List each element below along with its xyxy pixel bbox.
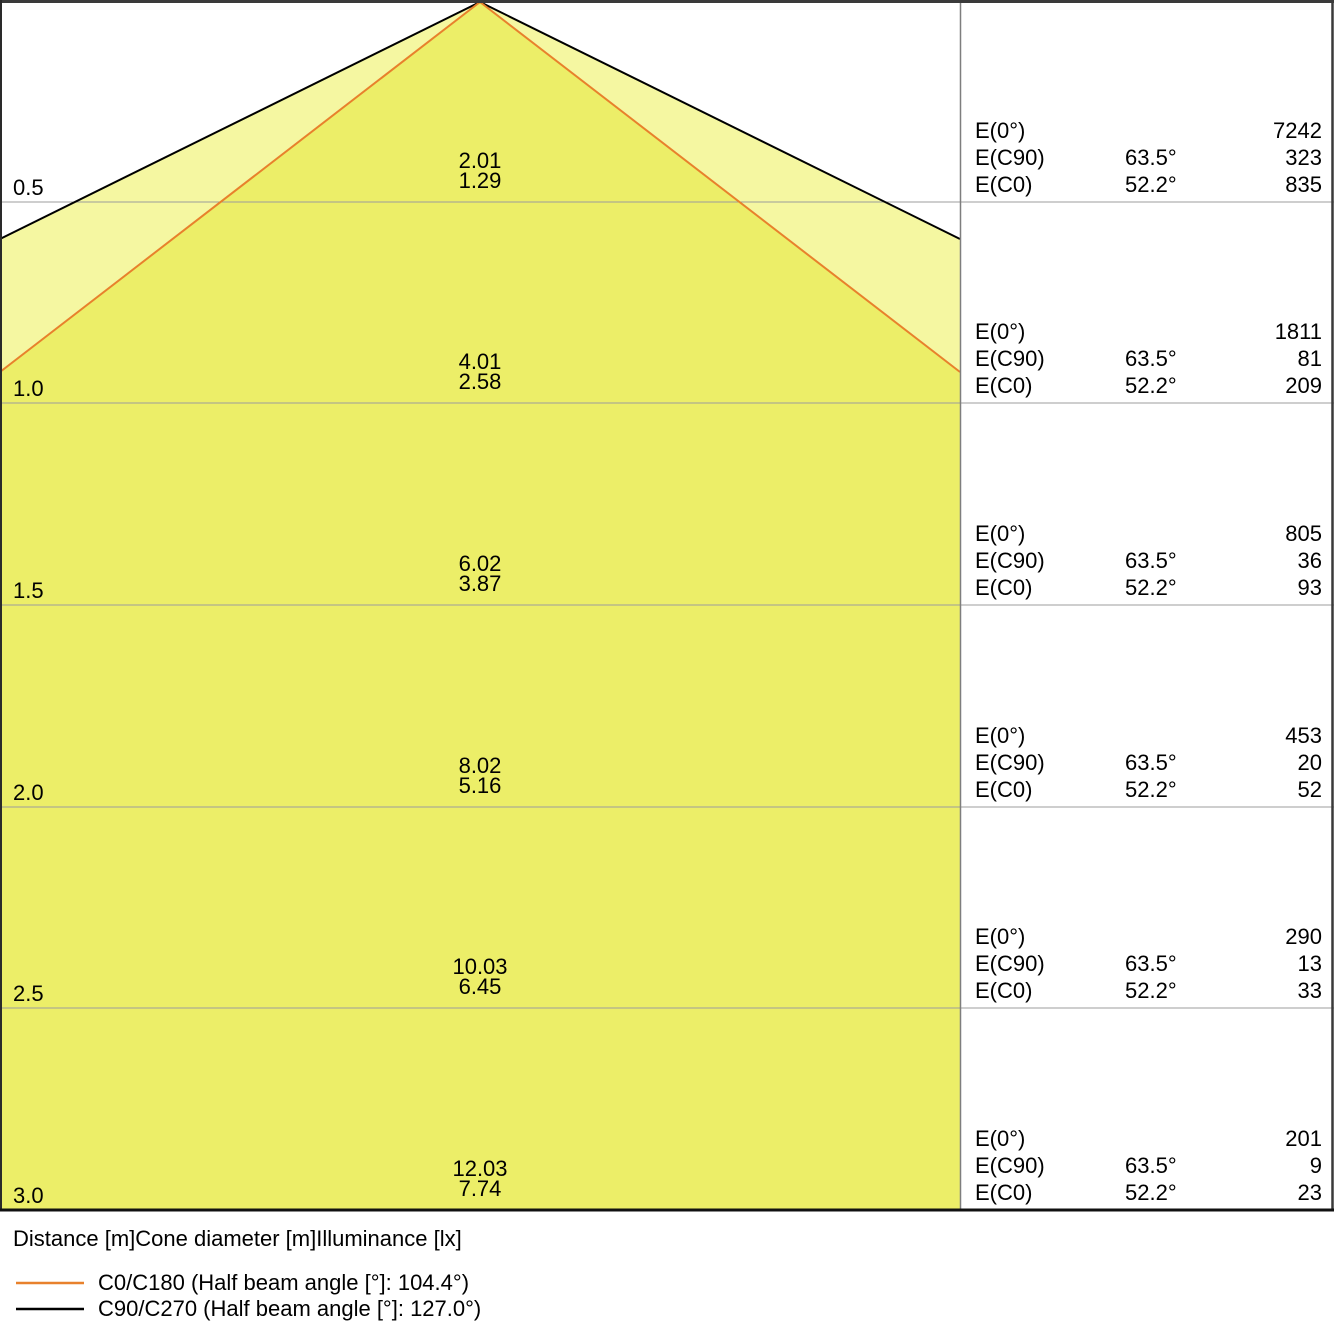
illuminance-table: E(0°)805 E(C90)63.5°36 E(C0)52.2°93 — [975, 520, 1322, 601]
cone-diameter-labels: 4.01 2.58 — [330, 352, 630, 392]
table-row: E(C0)52.2°835 — [975, 171, 1322, 198]
ec90-angle: 63.5° — [1125, 547, 1298, 574]
illuminance-table: E(0°)1811 E(C90)63.5°81 E(C0)52.2°209 — [975, 318, 1322, 399]
ec0-angle: 52.2° — [1125, 776, 1298, 803]
ec90-label: E(C90) — [975, 1152, 1125, 1179]
ec0-angle: 52.2° — [1125, 1179, 1298, 1206]
ec90-value: 13 — [1298, 950, 1322, 977]
cone-diameter-c0: 1.29 — [330, 171, 630, 191]
ec0-angle: 52.2° — [1125, 977, 1298, 1004]
cone-diameter-c0: 2.58 — [330, 372, 630, 392]
table-row: E(C0)52.2°209 — [975, 372, 1322, 399]
table-row: E(C90)63.5°81 — [975, 345, 1322, 372]
e0-angle — [1125, 318, 1275, 345]
ec90-angle: 63.5° — [1125, 749, 1298, 776]
e0-label: E(0°) — [975, 117, 1125, 144]
e0-value: 201 — [1285, 1125, 1322, 1152]
table-row: E(0°)453 — [975, 722, 1322, 749]
table-row: E(0°)1811 — [975, 318, 1322, 345]
table-row: E(0°)805 — [975, 520, 1322, 547]
table-row: E(C0)52.2°52 — [975, 776, 1322, 803]
illuminance-table: E(0°)7242 E(C90)63.5°323 E(C0)52.2°835 — [975, 117, 1322, 198]
ec90-angle: 63.5° — [1125, 950, 1298, 977]
illuminance-table: E(0°)453 E(C90)63.5°20 E(C0)52.2°52 — [975, 722, 1322, 803]
ec90-value: 81 — [1298, 345, 1322, 372]
legend-label: C90/C270 (Half beam angle [°]: 127.0°) — [98, 1296, 481, 1322]
c90-line-swatch — [15, 1306, 85, 1312]
ec90-value: 20 — [1298, 749, 1322, 776]
cone-diameter-labels: 10.03 6.45 — [330, 957, 630, 997]
table-row: E(0°)201 — [975, 1125, 1322, 1152]
table-row: E(C90)63.5°9 — [975, 1152, 1322, 1179]
cone-diameter-labels: 8.02 5.16 — [330, 756, 630, 796]
distance-label: 2.0 — [13, 782, 44, 804]
ec90-label: E(C90) — [975, 144, 1125, 171]
illuminance-table: E(0°)201 E(C90)63.5°9 E(C0)52.2°23 — [975, 1125, 1322, 1206]
ec0-angle: 52.2° — [1125, 372, 1285, 399]
table-row: E(C90)63.5°323 — [975, 144, 1322, 171]
legend-item-c0-c180: C0/C180 (Half beam angle [°]: 104.4°) — [15, 1269, 469, 1296]
ec0-value: 93 — [1298, 574, 1322, 601]
ec0-label: E(C0) — [975, 776, 1125, 803]
e0-label: E(0°) — [975, 520, 1125, 547]
ec90-value: 36 — [1298, 547, 1322, 574]
e0-label: E(0°) — [975, 318, 1125, 345]
cone-diameter-c0: 6.45 — [330, 977, 630, 997]
table-row: E(C90)63.5°20 — [975, 749, 1322, 776]
e0-value: 1811 — [1275, 318, 1322, 345]
ec90-angle: 63.5° — [1125, 1152, 1310, 1179]
ec0-value: 23 — [1298, 1179, 1322, 1206]
cone-diameter-c0: 3.87 — [330, 574, 630, 594]
cone-diameter-labels: 2.01 1.29 — [330, 151, 630, 191]
ec0-value: 33 — [1298, 977, 1322, 1004]
ec0-angle: 52.2° — [1125, 171, 1285, 198]
distance-label: 0.5 — [13, 177, 44, 199]
distance-label: 3.0 — [13, 1185, 44, 1207]
ec0-value: 835 — [1285, 171, 1322, 198]
e0-label: E(0°) — [975, 1125, 1125, 1152]
e0-angle — [1125, 722, 1285, 749]
ec0-label: E(C0) — [975, 1179, 1125, 1206]
ec0-value: 52 — [1298, 776, 1322, 803]
table-row: E(C90)63.5°36 — [975, 547, 1322, 574]
ec0-label: E(C0) — [975, 977, 1125, 1004]
ec90-label: E(C90) — [975, 547, 1125, 574]
e0-angle — [1125, 923, 1285, 950]
ec90-label: E(C90) — [975, 749, 1125, 776]
distance-label: 1.5 — [13, 580, 44, 602]
e0-label: E(0°) — [975, 722, 1125, 749]
ec0-label: E(C0) — [975, 372, 1125, 399]
axis-caption: Distance [m]Cone diameter [m]Illuminance… — [13, 1226, 462, 1252]
cone-diameter-labels: 12.03 7.74 — [330, 1159, 630, 1199]
e0-value: 805 — [1285, 520, 1322, 547]
e0-label: E(0°) — [975, 923, 1125, 950]
ec0-label: E(C0) — [975, 171, 1125, 198]
table-row: E(0°)290 — [975, 923, 1322, 950]
ec90-value: 323 — [1285, 144, 1322, 171]
ec90-value: 9 — [1310, 1152, 1322, 1179]
table-row: E(0°)7242 — [975, 117, 1322, 144]
ec90-label: E(C90) — [975, 345, 1125, 372]
c0-line-swatch — [15, 1280, 85, 1286]
table-row: E(C0)52.2°93 — [975, 574, 1322, 601]
ec90-angle: 63.5° — [1125, 345, 1298, 372]
e0-value: 7242 — [1273, 117, 1322, 144]
e0-angle — [1125, 520, 1285, 547]
e0-value: 453 — [1285, 722, 1322, 749]
e0-angle — [1125, 1125, 1285, 1152]
ec90-label: E(C90) — [975, 950, 1125, 977]
cone-diameter-labels: 6.02 3.87 — [330, 554, 630, 594]
e0-angle — [1125, 117, 1273, 144]
distance-label: 2.5 — [13, 983, 44, 1005]
distance-label: 1.0 — [13, 378, 44, 400]
ec0-angle: 52.2° — [1125, 574, 1298, 601]
table-row: E(C0)52.2°33 — [975, 977, 1322, 1004]
cone-diagram: 0.5 1.0 1.5 2.0 2.5 3.0 2.01 1.29 4.01 2… — [0, 0, 1334, 1334]
e0-value: 290 — [1285, 923, 1322, 950]
ec0-value: 209 — [1285, 372, 1322, 399]
cone-diameter-c0: 5.16 — [330, 776, 630, 796]
ec90-angle: 63.5° — [1125, 144, 1285, 171]
cone-diameter-c0: 7.74 — [330, 1179, 630, 1199]
table-row: E(C0)52.2°23 — [975, 1179, 1322, 1206]
legend-label: C0/C180 (Half beam angle [°]: 104.4°) — [98, 1270, 469, 1296]
illuminance-table: E(0°)290 E(C90)63.5°13 E(C0)52.2°33 — [975, 923, 1322, 1004]
ec0-label: E(C0) — [975, 574, 1125, 601]
table-row: E(C90)63.5°13 — [975, 950, 1322, 977]
legend-item-c90-c270: C90/C270 (Half beam angle [°]: 127.0°) — [15, 1295, 481, 1322]
